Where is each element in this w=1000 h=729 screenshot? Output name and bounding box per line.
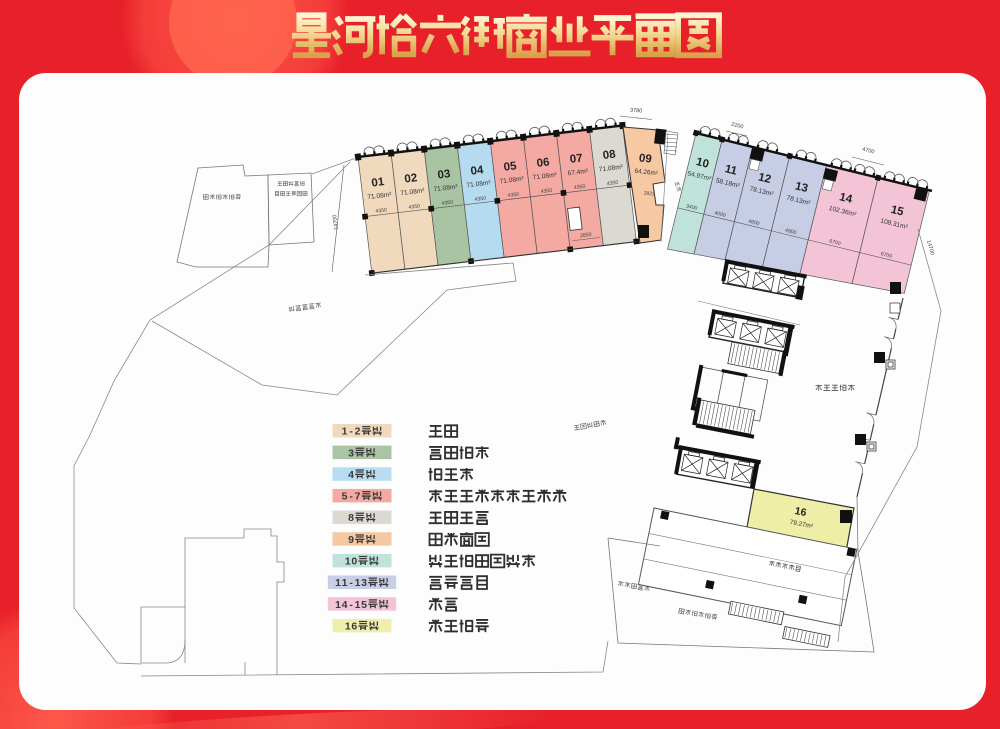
- svg-text:7: 7: [355, 491, 361, 503]
- svg-text:3: 3: [348, 447, 354, 459]
- svg-text:02: 02: [404, 172, 418, 185]
- svg-text:-: -: [349, 577, 353, 589]
- svg-text:2823: 2823: [643, 190, 655, 197]
- svg-text:-: -: [349, 599, 353, 611]
- svg-text:3: 3: [361, 577, 367, 589]
- svg-text:-: -: [349, 491, 353, 503]
- svg-text:-: -: [349, 426, 353, 438]
- svg-text:1: 1: [335, 599, 341, 611]
- svg-text:1: 1: [342, 577, 348, 589]
- svg-text:1: 1: [345, 620, 351, 632]
- svg-text:5: 5: [342, 491, 348, 503]
- svg-text:4: 4: [342, 599, 348, 611]
- svg-text:1: 1: [345, 556, 351, 568]
- svg-text:07: 07: [569, 152, 583, 165]
- svg-text:2: 2: [355, 426, 361, 438]
- svg-text:0: 0: [351, 556, 357, 568]
- svg-text:09: 09: [638, 152, 652, 165]
- svg-text:04: 04: [470, 164, 485, 178]
- svg-text:16: 16: [794, 505, 808, 519]
- svg-text:1: 1: [355, 577, 361, 589]
- svg-text:1: 1: [335, 577, 341, 589]
- svg-text:1: 1: [342, 426, 348, 438]
- svg-text:08: 08: [602, 148, 617, 162]
- svg-text:6: 6: [351, 620, 357, 632]
- svg-text:05: 05: [503, 160, 518, 174]
- svg-text:1: 1: [355, 599, 361, 611]
- svg-text:8: 8: [348, 512, 354, 524]
- svg-text:4: 4: [348, 469, 354, 481]
- svg-text:01: 01: [371, 176, 386, 190]
- svg-text:3780: 3780: [630, 107, 643, 114]
- svg-text:5: 5: [361, 599, 367, 611]
- svg-text:06: 06: [536, 156, 550, 169]
- svg-text:9: 9: [348, 534, 354, 546]
- svg-text:03: 03: [437, 168, 451, 181]
